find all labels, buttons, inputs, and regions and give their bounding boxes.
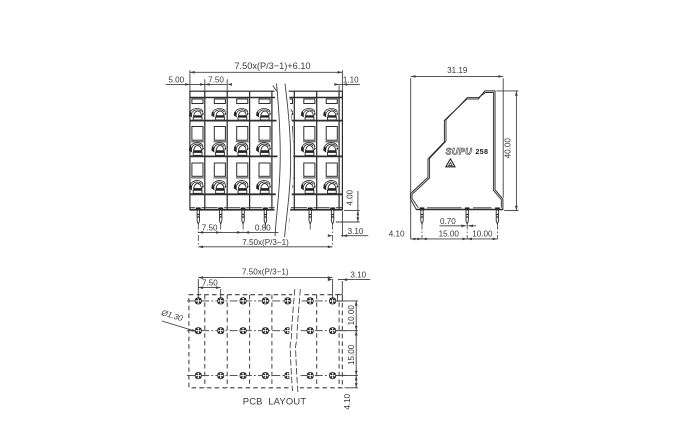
svg-text:4.10: 4.10 — [343, 393, 352, 409]
svg-text:7.50: 7.50 — [202, 224, 218, 233]
svg-text:SUPU: SUPU — [446, 147, 473, 157]
svg-text:15.00: 15.00 — [439, 230, 460, 239]
svg-text:7.50: 7.50 — [208, 76, 224, 85]
svg-text:31.19: 31.19 — [447, 66, 468, 75]
svg-text:3.10: 3.10 — [348, 227, 364, 236]
svg-text:0.70: 0.70 — [440, 217, 456, 226]
svg-text:258: 258 — [475, 147, 488, 156]
svg-text:7.50x(P/3−1): 7.50x(P/3−1) — [242, 238, 289, 247]
svg-text:40.00: 40.00 — [504, 138, 513, 159]
svg-text:4.00: 4.00 — [346, 189, 355, 205]
svg-text:0.80: 0.80 — [255, 224, 271, 233]
svg-text:4.10: 4.10 — [389, 230, 405, 239]
svg-text:15.00: 15.00 — [347, 344, 356, 365]
svg-text:10.00: 10.00 — [472, 230, 493, 239]
svg-text:PCB LAYOUT: PCB LAYOUT — [243, 396, 307, 407]
svg-text:7.50x(P/3−1): 7.50x(P/3−1) — [242, 268, 289, 277]
svg-text:7.50: 7.50 — [202, 279, 218, 288]
svg-text:10.00: 10.00 — [347, 305, 356, 326]
svg-text:3.10: 3.10 — [350, 271, 366, 280]
svg-text:5.00: 5.00 — [168, 76, 184, 85]
svg-text:1.10: 1.10 — [343, 76, 359, 85]
svg-text:7.50x(P/3−1)+6.10: 7.50x(P/3−1)+6.10 — [234, 61, 310, 71]
